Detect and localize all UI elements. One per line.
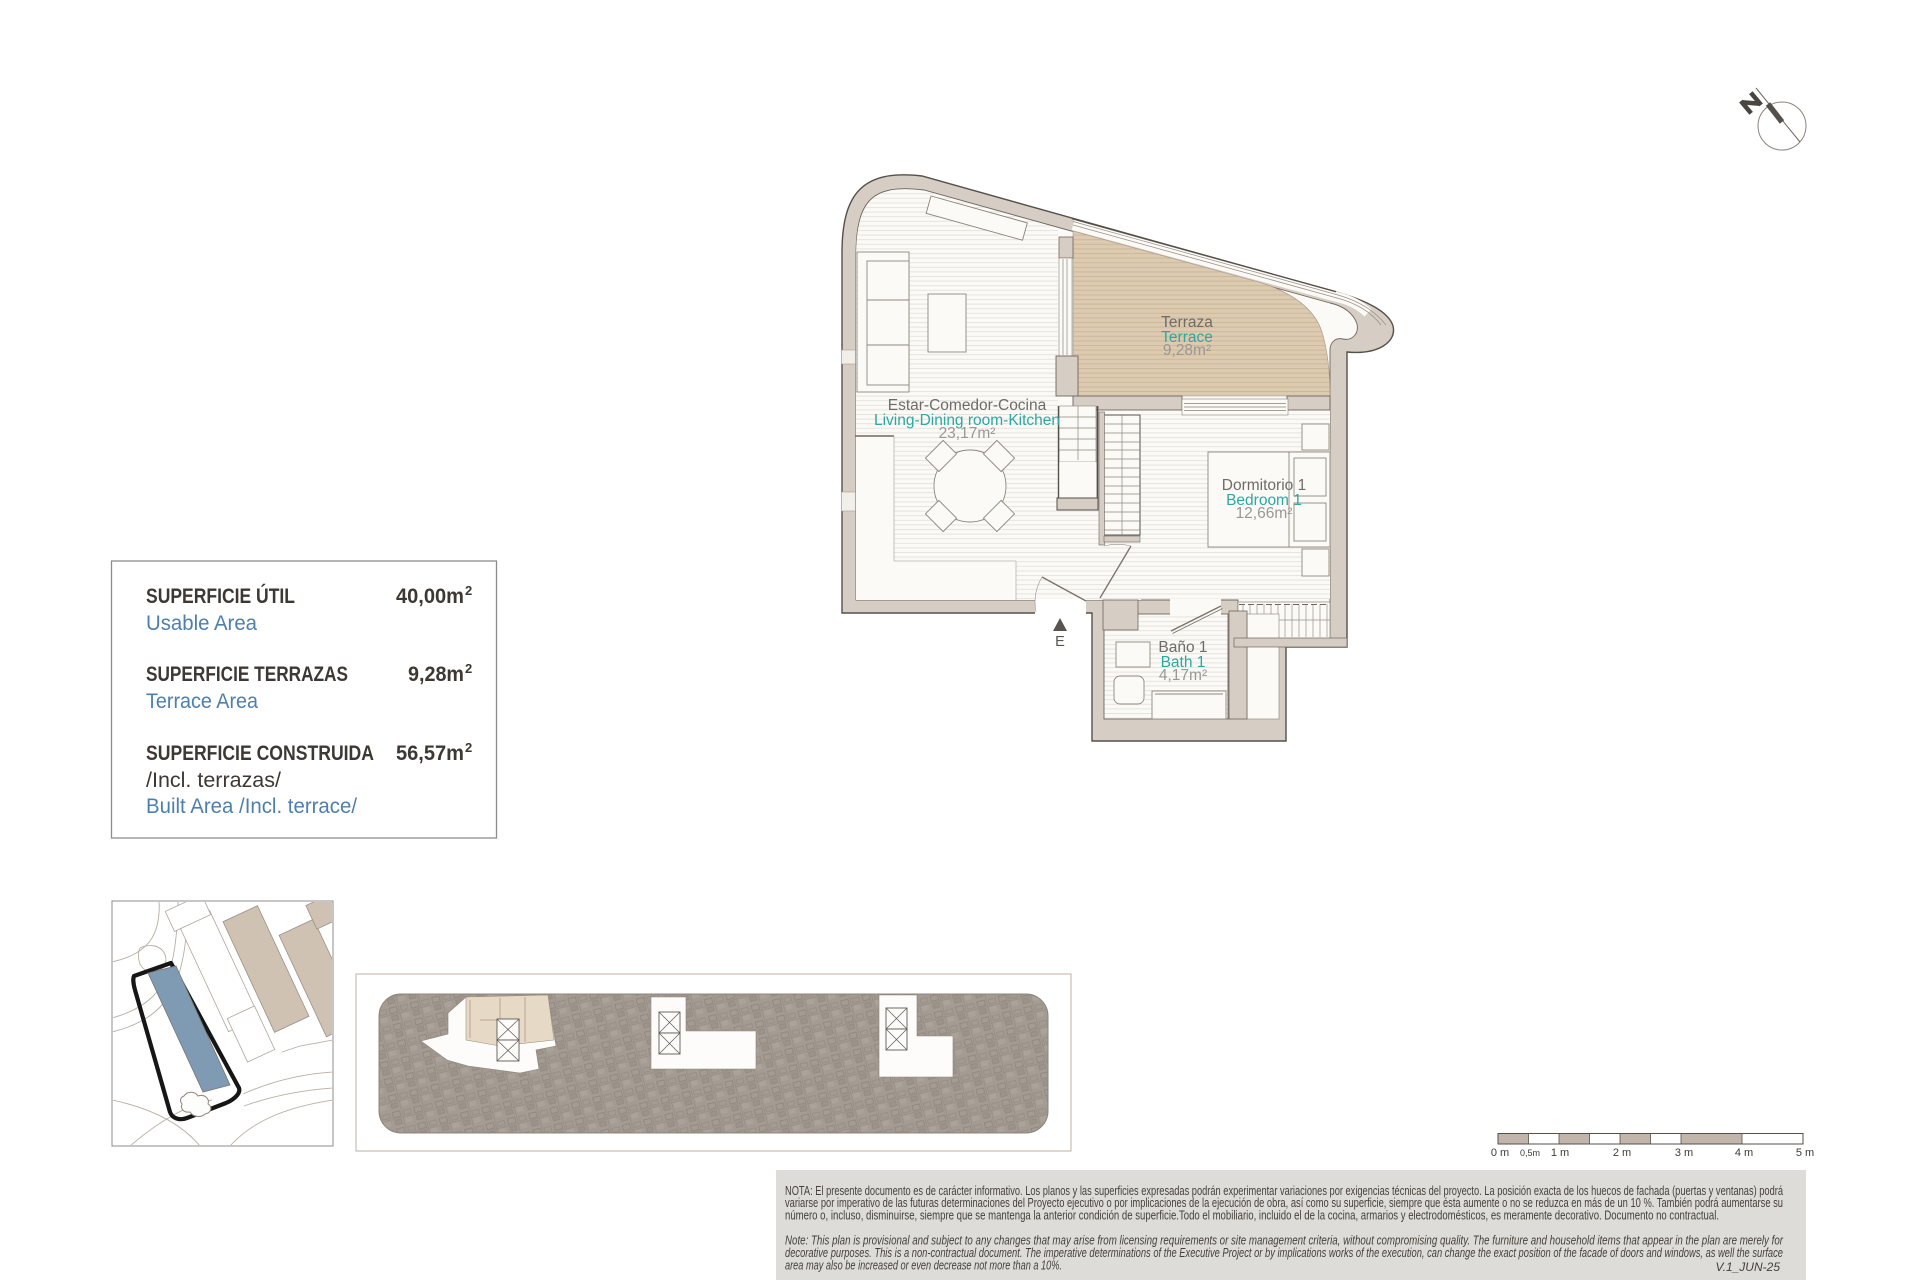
- svg-text:area may also be increased or: area may also be increased or even decre…: [785, 1259, 1062, 1273]
- svg-text:0 m: 0 m: [1491, 1147, 1509, 1159]
- svg-text:56,57m: 56,57m: [396, 741, 464, 765]
- svg-text:Built Area /Incl. terrace/: Built Area /Incl. terrace/: [146, 795, 357, 818]
- svg-text:SUPERFICIE CONSTRUIDA: SUPERFICIE CONSTRUIDA: [146, 741, 374, 765]
- svg-text:2: 2: [465, 583, 472, 598]
- svg-text:3 m: 3 m: [1675, 1147, 1693, 1159]
- svg-text:0,5m: 0,5m: [1520, 1148, 1540, 1158]
- svg-text:4 m: 4 m: [1735, 1147, 1753, 1159]
- svg-text:2: 2: [465, 740, 472, 755]
- svg-text:Usable Area: Usable Area: [146, 612, 257, 635]
- svg-text:V.1_JUN-25: V.1_JUN-25: [1716, 1260, 1781, 1274]
- svg-text:23,17m²: 23,17m²: [939, 425, 996, 442]
- svg-text:9,28m²: 9,28m²: [1163, 342, 1211, 359]
- svg-text:9,28m: 9,28m: [408, 662, 464, 686]
- svg-text:número o, incluso, disminuirse: número o, incluso, disminuirse, siempre …: [785, 1208, 1719, 1222]
- svg-text:Terrace Area: Terrace Area: [146, 690, 258, 713]
- svg-text:1 m: 1 m: [1551, 1147, 1569, 1159]
- svg-text:4,17m²: 4,17m²: [1159, 667, 1207, 684]
- svg-text:12,66m²: 12,66m²: [1236, 505, 1293, 522]
- svg-text:5 m: 5 m: [1796, 1147, 1814, 1159]
- svg-text:SUPERFICIE ÚTIL: SUPERFICIE ÚTIL: [146, 583, 295, 608]
- svg-text:40,00m: 40,00m: [396, 584, 464, 608]
- svg-text:2 m: 2 m: [1613, 1147, 1631, 1159]
- svg-text:2: 2: [465, 661, 472, 676]
- svg-text:E: E: [1055, 634, 1065, 650]
- svg-text:/Incl. terrazas/: /Incl. terrazas/: [146, 769, 281, 792]
- svg-text:SUPERFICIE TERRAZAS: SUPERFICIE TERRAZAS: [146, 662, 348, 686]
